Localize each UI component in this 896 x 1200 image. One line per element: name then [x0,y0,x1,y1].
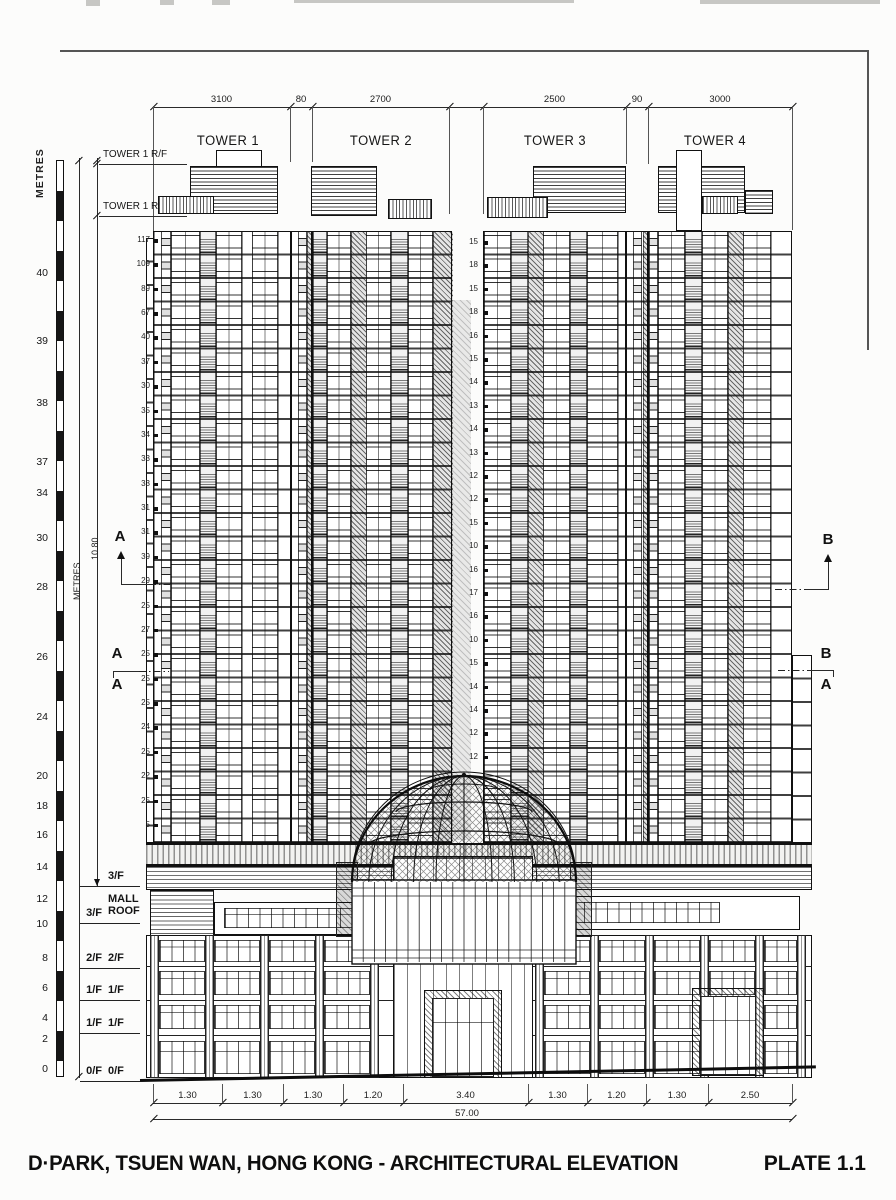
section-marker-b-pair-top: B [821,645,832,662]
floor-tick [154,410,158,414]
drawing-sheet: 31008027002500903000 TOWER 1TOWER 2TOWER… [0,0,896,1200]
floor-number: 24 [126,722,150,731]
tower-link-1 [291,231,312,843]
floor-tick [484,639,488,643]
link-floor-lines [627,232,647,842]
floor-tick [484,311,488,315]
roof-structure [388,199,432,219]
podium-level-left: 0/F [76,1065,102,1077]
floor-tick [154,605,158,609]
podium-window [214,1041,260,1074]
podium-window [159,1005,205,1029]
metres-scale-title: METRES [34,148,46,198]
tower-floor-lines [484,232,625,842]
tower-link-2 [626,231,648,843]
floor-tick [484,756,488,760]
floor-tick [484,522,488,526]
dim-extension-line [343,1084,344,1103]
floor-number: 25 [126,649,150,658]
podium-window [214,1005,260,1029]
floor-number: 33 [126,479,150,488]
tower-1-facade [153,231,291,843]
scale-mark-14: 14 [14,861,48,873]
floor-tick [484,452,488,456]
podium-level-underline [80,1000,140,1001]
section-a-dashline [149,584,171,585]
podium-level-left: 3/F [76,907,102,919]
floor-number: 16 [454,611,478,620]
floor-number: 15 [454,284,478,293]
dim-tick [789,1115,797,1123]
dim-extension-line [587,1084,588,1103]
floor-number: 33 [126,454,150,463]
floor-number: 25 [126,796,150,805]
floor-number: 12 [454,471,478,480]
floor-tick [484,264,488,268]
scale-mark-20: 20 [14,770,48,782]
floor-tick [154,775,158,779]
roof-level-label-1: TOWER 1 R/F [103,148,167,160]
floor-tick [484,592,488,596]
floor-tick [154,531,158,535]
floor-tick [154,678,158,682]
bottom-dim-label: 1.30 [243,1090,262,1101]
dim-extension-line [222,1084,223,1103]
floor-tick [484,428,488,432]
podium-level-underline [80,886,140,887]
right-entrance-portal [692,988,764,1076]
tower-2-facade [312,231,452,843]
dim-extension-line [792,1084,793,1103]
dim-extension-line [708,1084,709,1103]
floor-number: 18 [454,307,478,316]
tower-floor-lines [313,232,451,842]
floor-number: 16 [454,331,478,340]
link-floor-lines [292,232,311,842]
scale-mark-30: 30 [14,532,48,544]
floor-tick [154,434,158,438]
total-dimension-label: 57.00 [451,1108,483,1119]
dome [330,770,596,970]
floor-tick [484,709,488,713]
floor-tick [484,732,488,736]
podium-window [544,971,590,995]
floor-tick [154,263,158,267]
dim-tick [789,103,797,111]
main-entrance-portal [424,990,502,1078]
floor-number: 31 [126,527,150,536]
podium-window [324,1005,370,1029]
podium-window [324,1041,370,1074]
tower-4-facade [648,231,792,843]
floor-tick [484,498,488,502]
podium-level-left: 2/F [76,952,102,964]
podium-window [544,1005,590,1029]
podium-window [709,940,755,962]
vertical-dim-metres-label: METRES [72,562,82,600]
floor-number: 117 [126,235,150,244]
section-marker-b-pair-bottom: A [821,676,832,693]
scale-mark-24: 24 [14,711,48,723]
floor-tick [154,824,158,828]
floor-tick [484,335,488,339]
dim-extension-line [290,107,291,162]
floor-number: 13 [454,448,478,457]
dim-extension-line [283,1084,284,1103]
scale-mark-28: 28 [14,581,48,593]
dim-extension-line [626,107,627,164]
podium-window [159,940,205,962]
dim-arrow-3f [94,879,100,886]
dim-extension-line [312,107,313,162]
floor-number: 35 [126,406,150,415]
bottom-dim-label: 1.30 [548,1090,567,1101]
floor-number: 30 [126,381,150,390]
floor-number: 109 [126,259,150,268]
top-dim-label: 90 [632,94,643,105]
scale-mark-6: 6 [14,982,48,994]
podium-pilaster [150,935,159,1078]
tower-3-facade [483,231,626,843]
floor-tick [484,569,488,573]
side-wing-floors [793,656,811,842]
podium-window [764,1005,797,1029]
podium-level-left: 1/F [76,1017,102,1029]
right-entrance-doors [700,996,756,1075]
vertical-dim-height-label: 10.80 [90,537,100,560]
floor-number: 17 [454,588,478,597]
section-b-arrowhead [824,554,832,562]
scan-artifact [160,0,174,5]
frame-top-line [60,50,868,52]
floor-tick [484,381,488,385]
podium-pilaster [315,935,324,1078]
vertical-dim-line-tower [97,158,98,886]
scan-artifact [294,0,574,3]
bottom-dim-label: 1.30 [668,1090,687,1101]
floor-number: 37 [126,357,150,366]
floor-number: 15 [454,658,478,667]
scale-mark-2: 2 [14,1033,48,1045]
top-dim-label: 2500 [544,94,565,105]
vertical-dim-line-full [79,158,80,1078]
floor-number: 31 [126,503,150,512]
tower-label-1: TOWER 1 [197,133,259,148]
floor-number: 40 [126,332,150,341]
bottom-dim-label: 1.30 [304,1090,323,1101]
scale-mark-4: 4 [14,1012,48,1024]
tower-label-4: TOWER 4 [684,133,746,148]
floor-number: 13 [454,401,478,410]
dim-extension-line [792,107,793,230]
dim-extension-line [153,1084,154,1103]
podium-pilaster [645,935,654,1078]
podium-level-underline [80,1033,140,1034]
floor-number: 22 [126,771,150,780]
scale-mark-10: 10 [14,918,48,930]
section-marker-b-upper: B [823,531,834,548]
floor-number: 12 [454,728,478,737]
floor-tick [154,239,158,243]
podium-window [764,971,797,995]
tower-floor-lines [649,232,791,842]
scale-mark-40: 40 [14,267,48,279]
bottom-dim-label: 2.50 [741,1090,760,1101]
scale-mark-39: 39 [14,335,48,347]
podium-window [269,1005,315,1029]
bottom-dimension-line [153,1103,792,1104]
podium-pilaster [797,935,806,1078]
podium-window [159,971,205,995]
top-dim-label: 3100 [211,94,232,105]
plate-number: PLATE 1.1 [764,1152,866,1176]
floor-number: 16 [454,565,478,574]
tower-label-2: TOWER 2 [350,133,412,148]
floor-tick [154,361,158,365]
roof-structure [311,166,377,216]
roof-structure [216,150,262,167]
section-b-pair-tick [833,670,834,677]
scale-mark-8: 8 [14,952,48,964]
scan-artifact [86,0,100,6]
podium-window [764,940,797,962]
floor-number: 15 [454,237,478,246]
dim-extension-line [528,1084,529,1103]
floor-number: 25 [126,747,150,756]
podium-window [654,940,700,962]
floor-number: 89 [126,284,150,293]
floor-tick [154,653,158,657]
section-a-pair-dashline [139,671,169,672]
dim-extension-line [648,107,649,164]
section-b-elbow [806,589,829,590]
floor-number: 39 [126,552,150,561]
floor-number: 10 [454,541,478,550]
floor-tick [154,726,158,730]
roof-structure [487,197,548,218]
section-marker-a-upper: A [115,528,126,545]
section-b-dashline [775,589,806,590]
podium-window [269,940,315,962]
tower-label-3: TOWER 3 [524,133,586,148]
floor-number: 25 [126,698,150,707]
podium-window [214,971,260,995]
metres-scale-bar [56,160,64,1077]
floor-tick [154,458,158,462]
top-dim-label: 2700 [370,94,391,105]
floor-tick [154,751,158,755]
dim-extension-line [646,1084,647,1103]
floor-number: 14 [454,424,478,433]
roof-structure [676,150,702,231]
podium-window [599,940,645,962]
floor-tick [484,662,488,666]
podium-window [324,971,370,995]
frame-right-line [867,50,869,350]
podium-window [159,1041,205,1074]
floor-tick [484,241,488,245]
floor-tick [154,556,158,560]
floor-tick [154,507,158,511]
floor-tick [154,702,158,706]
main-entrance-doors [432,998,494,1077]
floor-tick [484,686,488,690]
section-a-elbow [121,584,149,585]
podium-level-right: MALL ROOF [108,893,144,917]
floor-number: 25 [126,601,150,610]
floor-tick [484,405,488,409]
floor-number: 10 [454,635,478,644]
section-b-arrow-line [828,560,829,590]
section-a-arrow-line [121,557,122,585]
podium-window [214,940,260,962]
floor-tick [484,475,488,479]
podium-window [269,1041,315,1074]
tower4-side-wing [792,655,812,843]
roof-level-underline [99,216,187,217]
floor-number: 14 [454,682,478,691]
podium-level-right: 0/F [108,1065,144,1077]
podium-pilaster [205,935,214,1078]
roof-structure [702,196,738,214]
total-dimension-line [153,1119,792,1120]
podium-level-left: 1/F [76,984,102,996]
bottom-dim-label: 3.40 [456,1090,475,1101]
top-dim-label: 3000 [709,94,730,105]
floor-number: 14 [454,377,478,386]
podium-window [599,1005,645,1029]
section-a-arrowhead [117,551,125,559]
section-marker-a-pair-top: A [112,645,123,662]
top-dimension-line [153,107,792,108]
top-dim-label: 80 [296,94,307,105]
bottom-dim-label: 1.20 [364,1090,383,1101]
tower-floor-lines [154,232,290,842]
floor-number: 18 [454,260,478,269]
floor-number: 67 [126,308,150,317]
floor-tick [484,288,488,292]
podium-level-right: 1/F [108,1017,144,1029]
bottom-dim-label: 1.30 [178,1090,197,1101]
dim-extension-line [483,107,484,214]
floor-number: 14 [454,705,478,714]
podium-pilaster [260,935,269,1078]
dim-extension-line [403,1084,404,1103]
floor-number: 27 [126,625,150,634]
floor-tick [154,800,158,804]
scale-mark-16: 16 [14,829,48,841]
section-a-pair-elbow [113,671,139,672]
floor-number: 5 [126,820,150,829]
section-b-pair-elbow [808,670,834,671]
floor-tick [484,545,488,549]
floor-tick [154,336,158,340]
floor-tick [154,288,158,292]
scan-artifact [212,0,230,5]
scale-mark-26: 26 [14,651,48,663]
floor-tick [154,312,158,316]
dim-extension-line [153,107,154,233]
podium-level-right: 2/F [108,952,144,964]
scale-mark-12: 12 [14,893,48,905]
floor-number: 34 [126,430,150,439]
floor-number: 12 [454,494,478,503]
scale-mark-34: 34 [14,487,48,499]
podium-level-right: 1/F [108,984,144,996]
roof-structure [745,190,773,214]
podium-window [764,1041,797,1074]
podium-window [544,1041,590,1074]
scale-mark-0: 0 [14,1063,48,1075]
roof-level-underline [99,164,187,165]
scale-mark-18: 18 [14,800,48,812]
scale-mark-37: 37 [14,456,48,468]
podium-level-right: 3/F [108,870,144,882]
scale-mark-38: 38 [14,397,48,409]
floor-tick [484,358,488,362]
bottom-dim-label: 1.20 [607,1090,626,1101]
floor-number: 12 [454,752,478,761]
floor-tick [154,385,158,389]
floor-number: 25 [126,674,150,683]
floor-tick [484,615,488,619]
dim-extension-line [449,107,450,214]
podium-level-underline [80,1081,140,1082]
roof-structure [158,196,214,214]
floor-tick [154,483,158,487]
dim-tick [789,1099,797,1107]
section-marker-a-pair-bottom: A [112,676,123,693]
floor-number: 15 [454,354,478,363]
podium-level-underline [80,923,140,924]
podium-level-underline [80,968,140,969]
floor-number: 15 [454,518,478,527]
floor-tick [154,629,158,633]
podium-window [269,971,315,995]
section-b-pair-dashline [778,670,808,671]
podium-window [599,971,645,995]
drawing-title: D·PARK, TSUEN WAN, HONG KONG - ARCHITECT… [28,1152,678,1176]
scan-artifact [700,0,880,4]
